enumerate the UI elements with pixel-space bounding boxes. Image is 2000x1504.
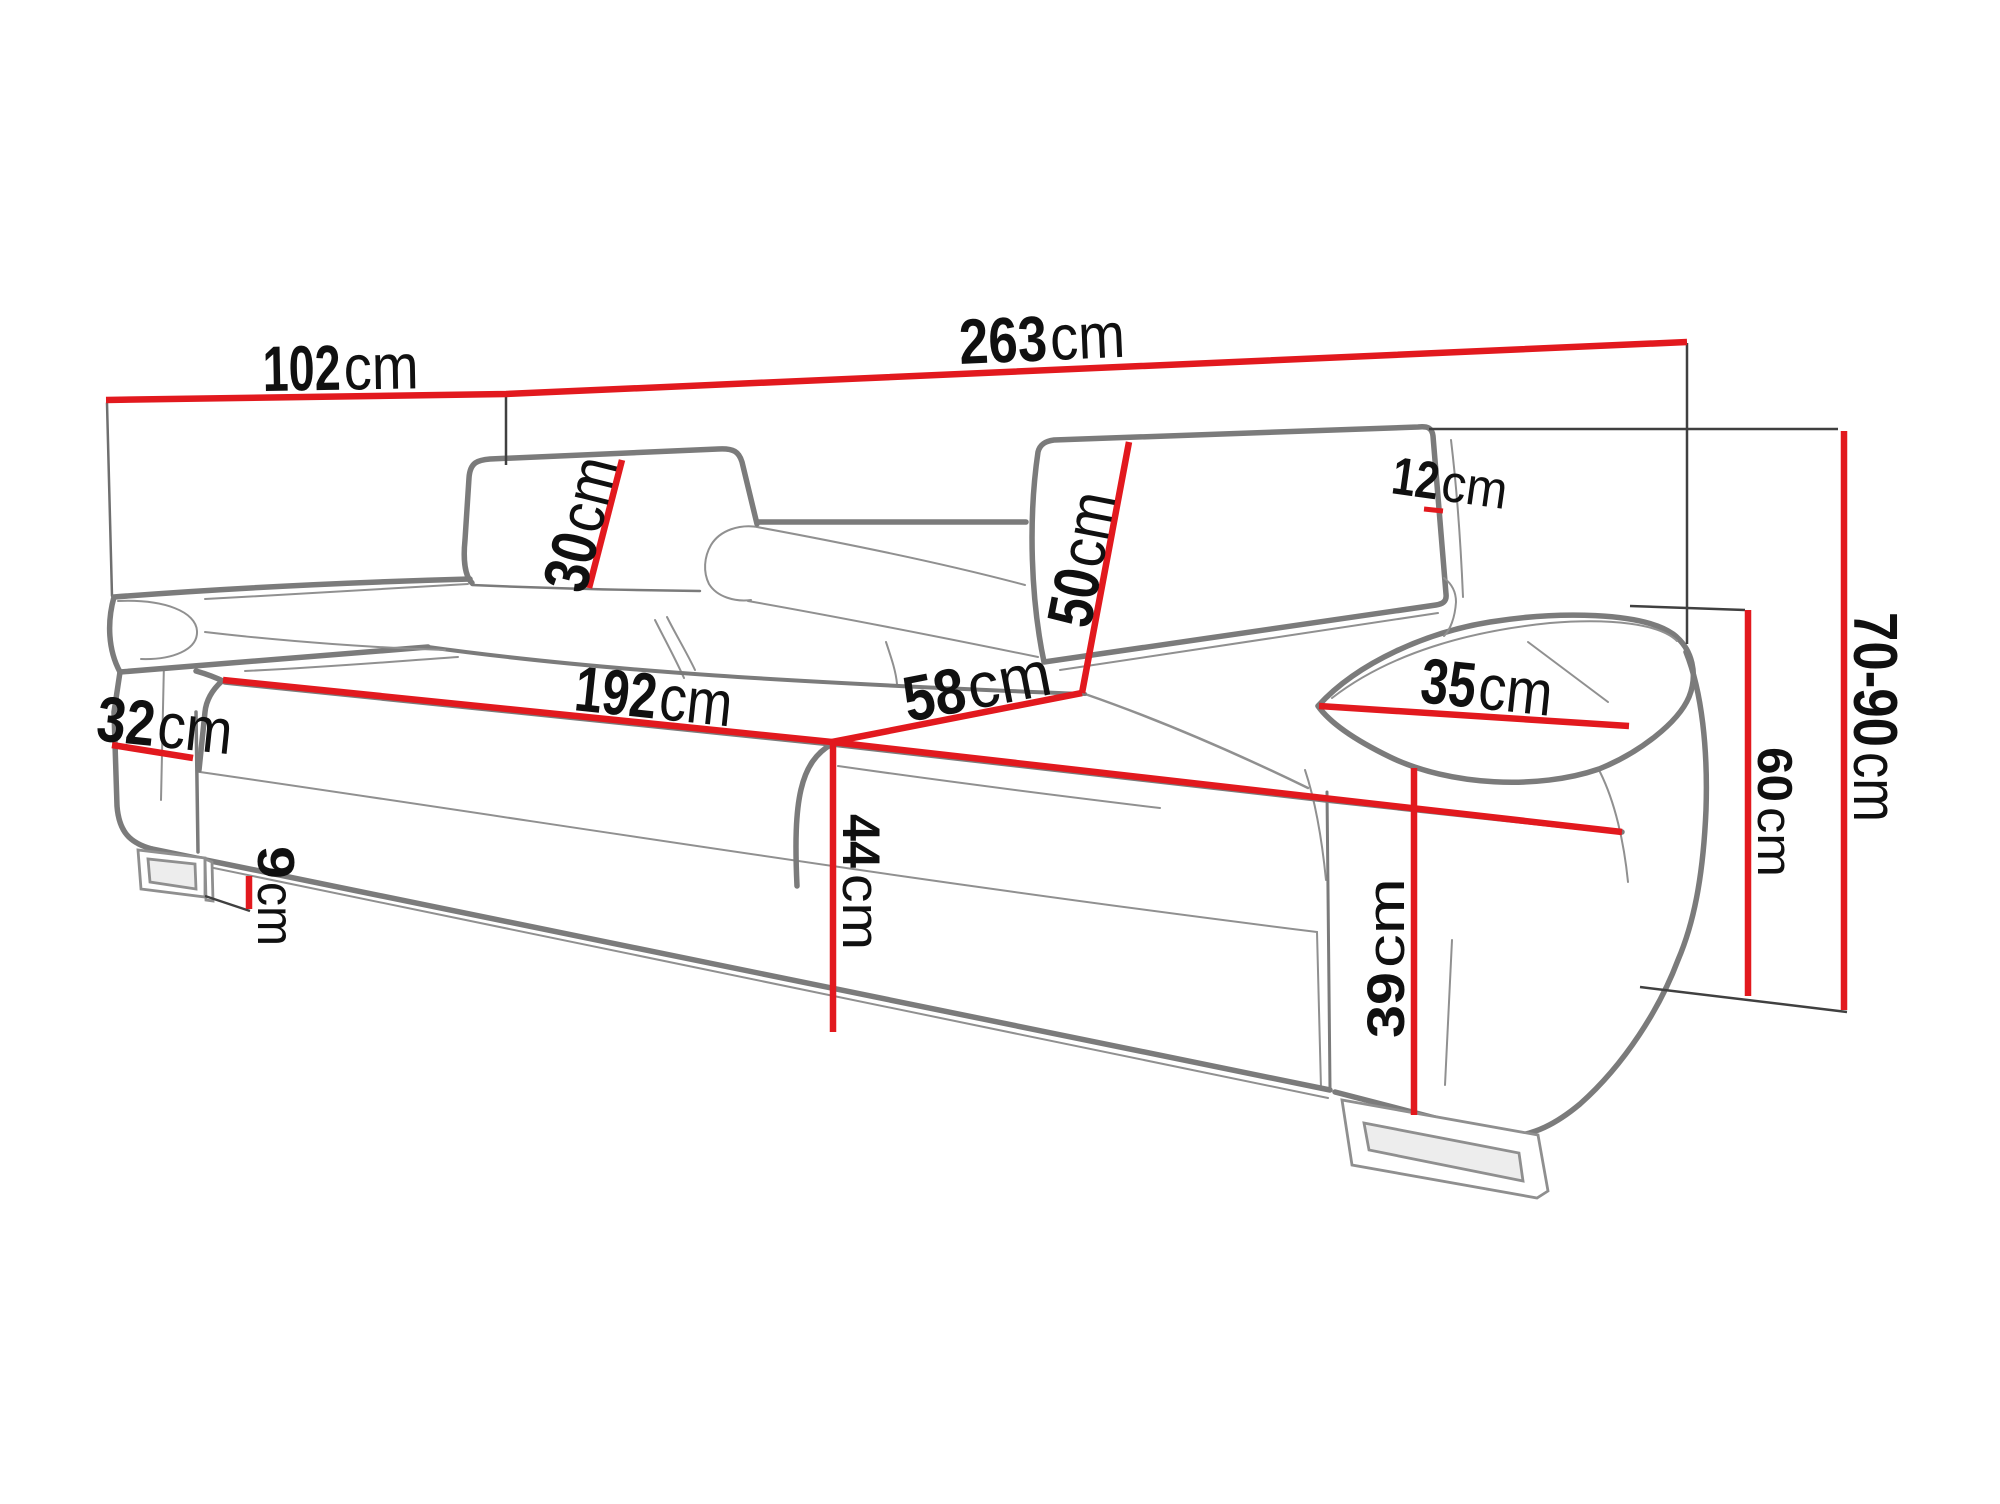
svg-text:35cm: 35cm (1418, 644, 1557, 729)
svg-text:9cm: 9cm (246, 846, 304, 946)
svg-text:263cm: 263cm (957, 299, 1126, 378)
svg-text:39cm: 39cm (1357, 878, 1416, 1038)
svg-text:32cm: 32cm (94, 682, 237, 768)
svg-text:60cm: 60cm (1747, 747, 1801, 877)
svg-text:70-90cm: 70-90cm (1840, 612, 1909, 822)
svg-text:44cm: 44cm (831, 814, 890, 950)
